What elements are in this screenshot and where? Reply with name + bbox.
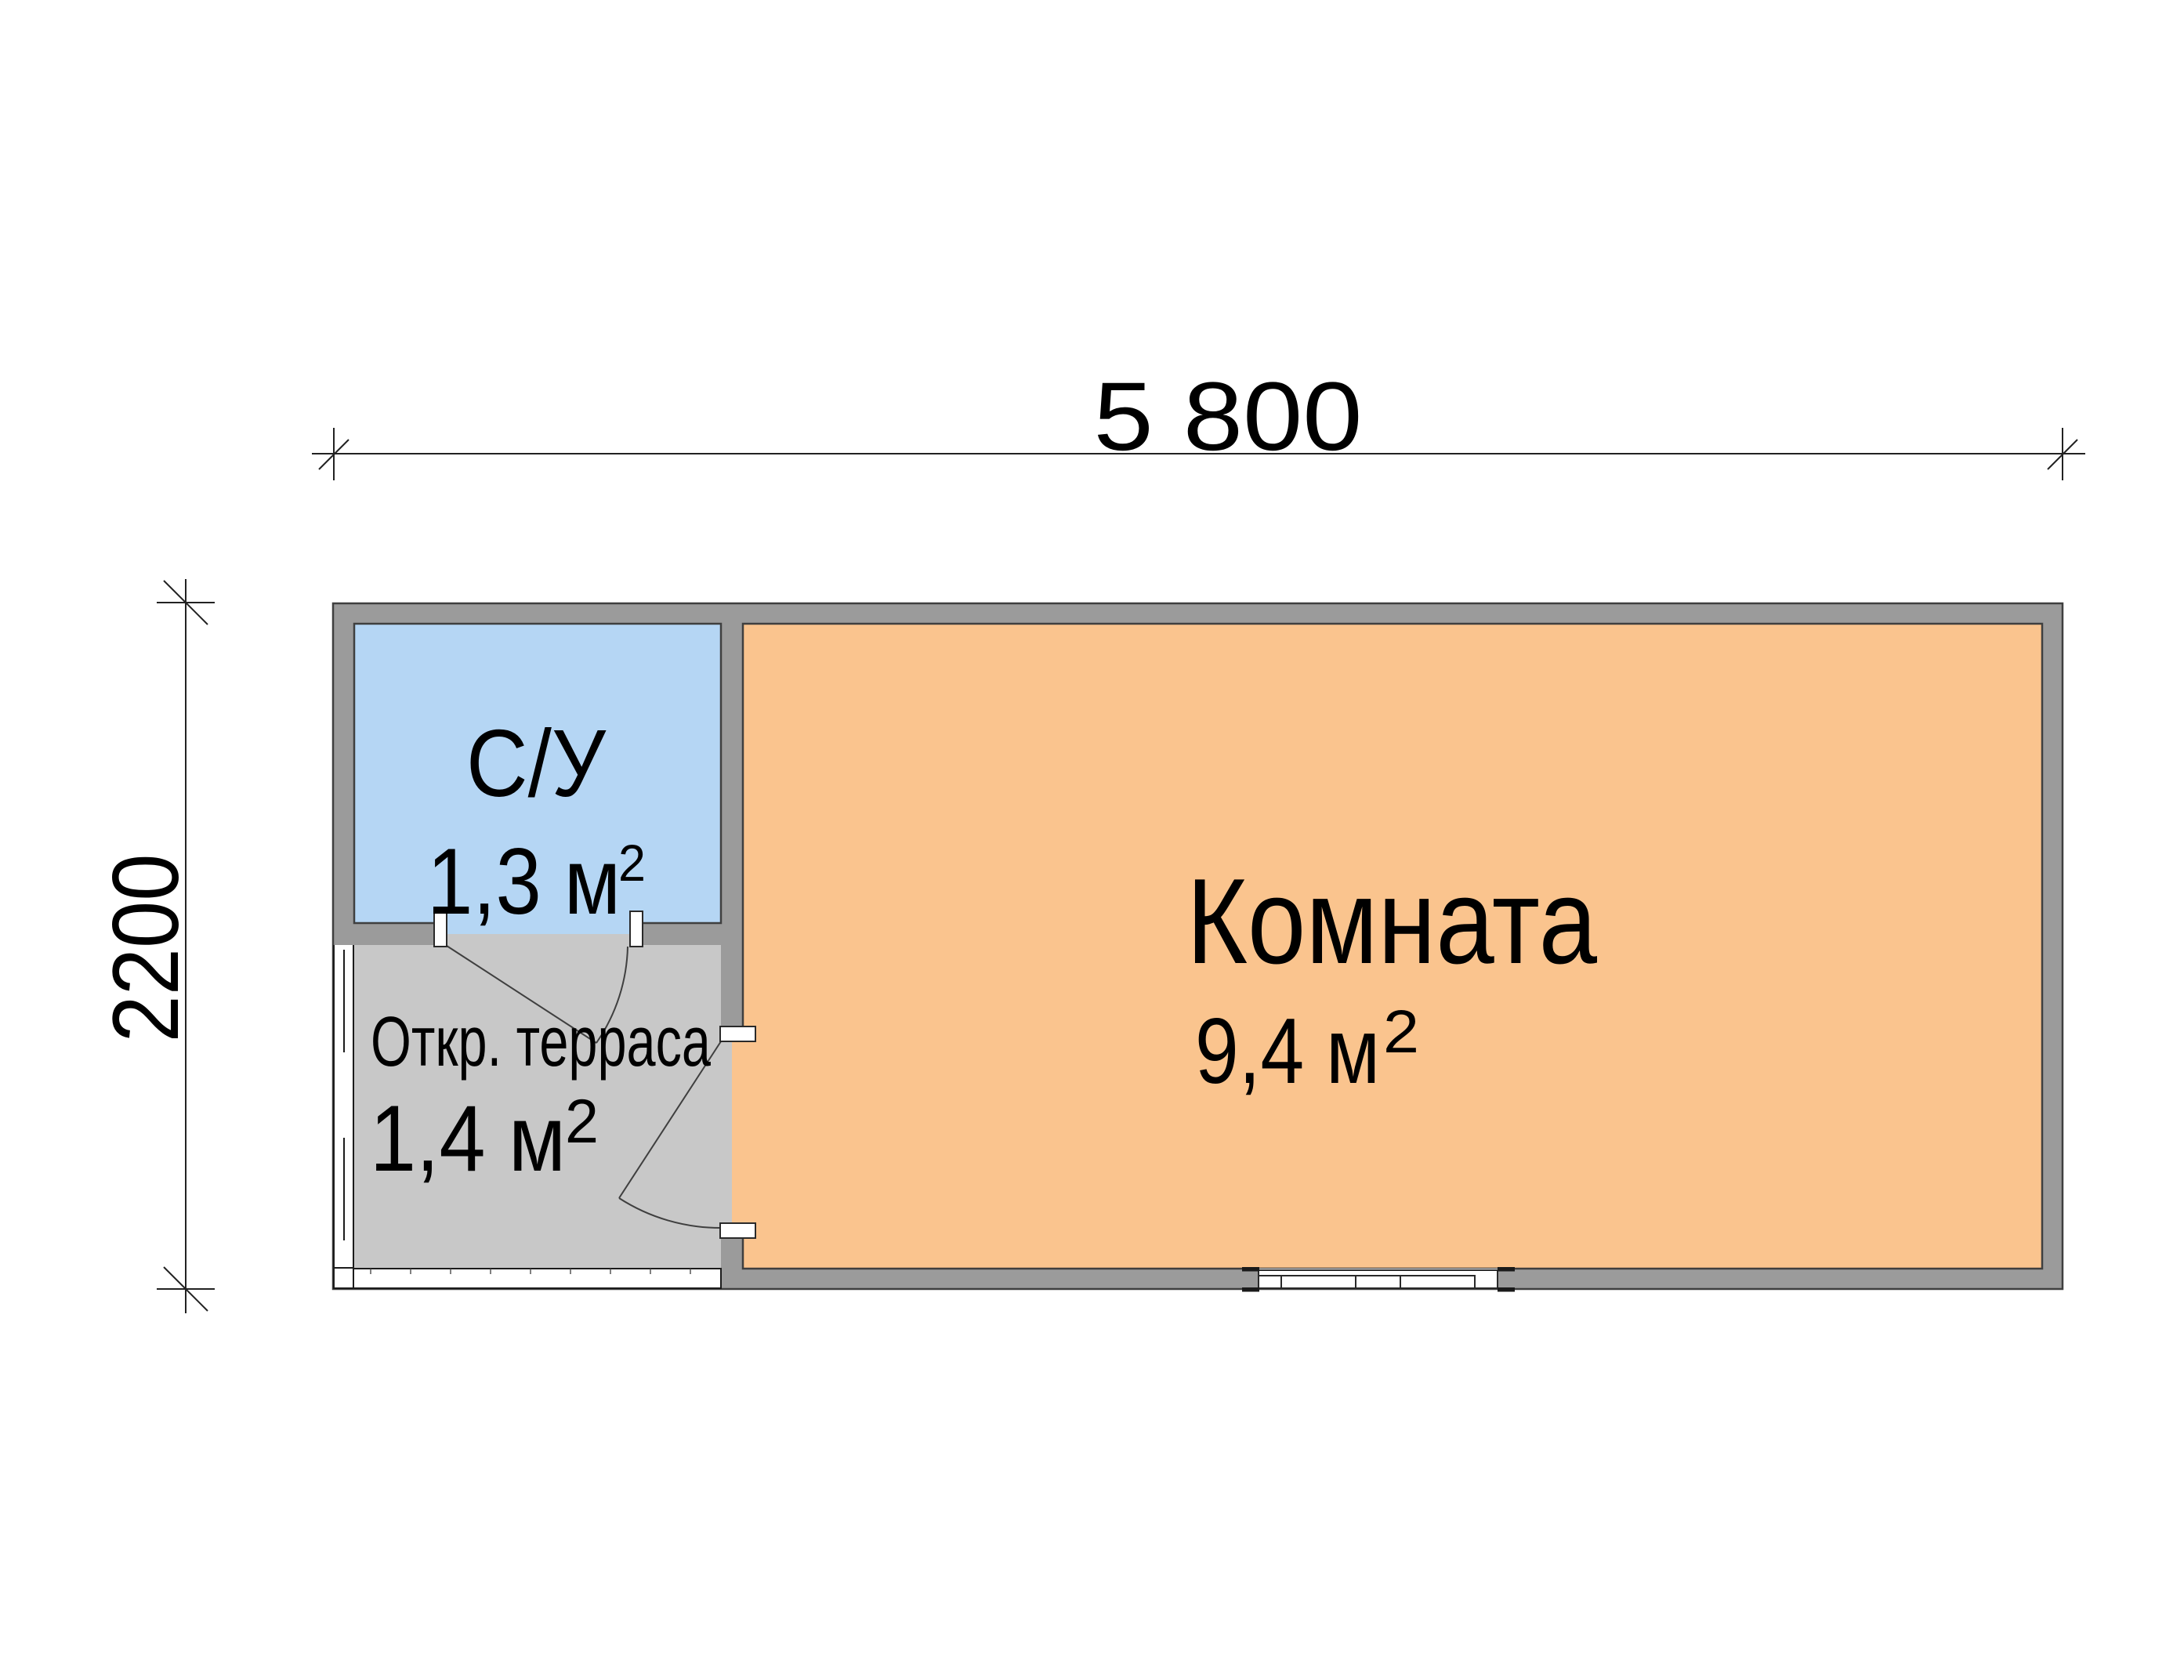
svg-text:2: 2: [618, 834, 646, 892]
svg-text:2: 2: [1383, 998, 1419, 1066]
svg-text:1,3 м: 1,3 м: [427, 829, 621, 934]
svg-text:Откр. терраса: Откр. терраса: [371, 1003, 712, 1081]
svg-text:2200: 2200: [93, 854, 198, 1043]
svg-text:1,4 м: 1,4 м: [370, 1086, 566, 1191]
svg-text:С/У: С/У: [466, 710, 607, 816]
svg-text:2: 2: [565, 1086, 599, 1156]
svg-text:Комната: Комната: [1186, 853, 1598, 989]
svg-text:5 800: 5 800: [1094, 363, 1363, 471]
svg-text:9,4 м: 9,4 м: [1195, 999, 1380, 1103]
